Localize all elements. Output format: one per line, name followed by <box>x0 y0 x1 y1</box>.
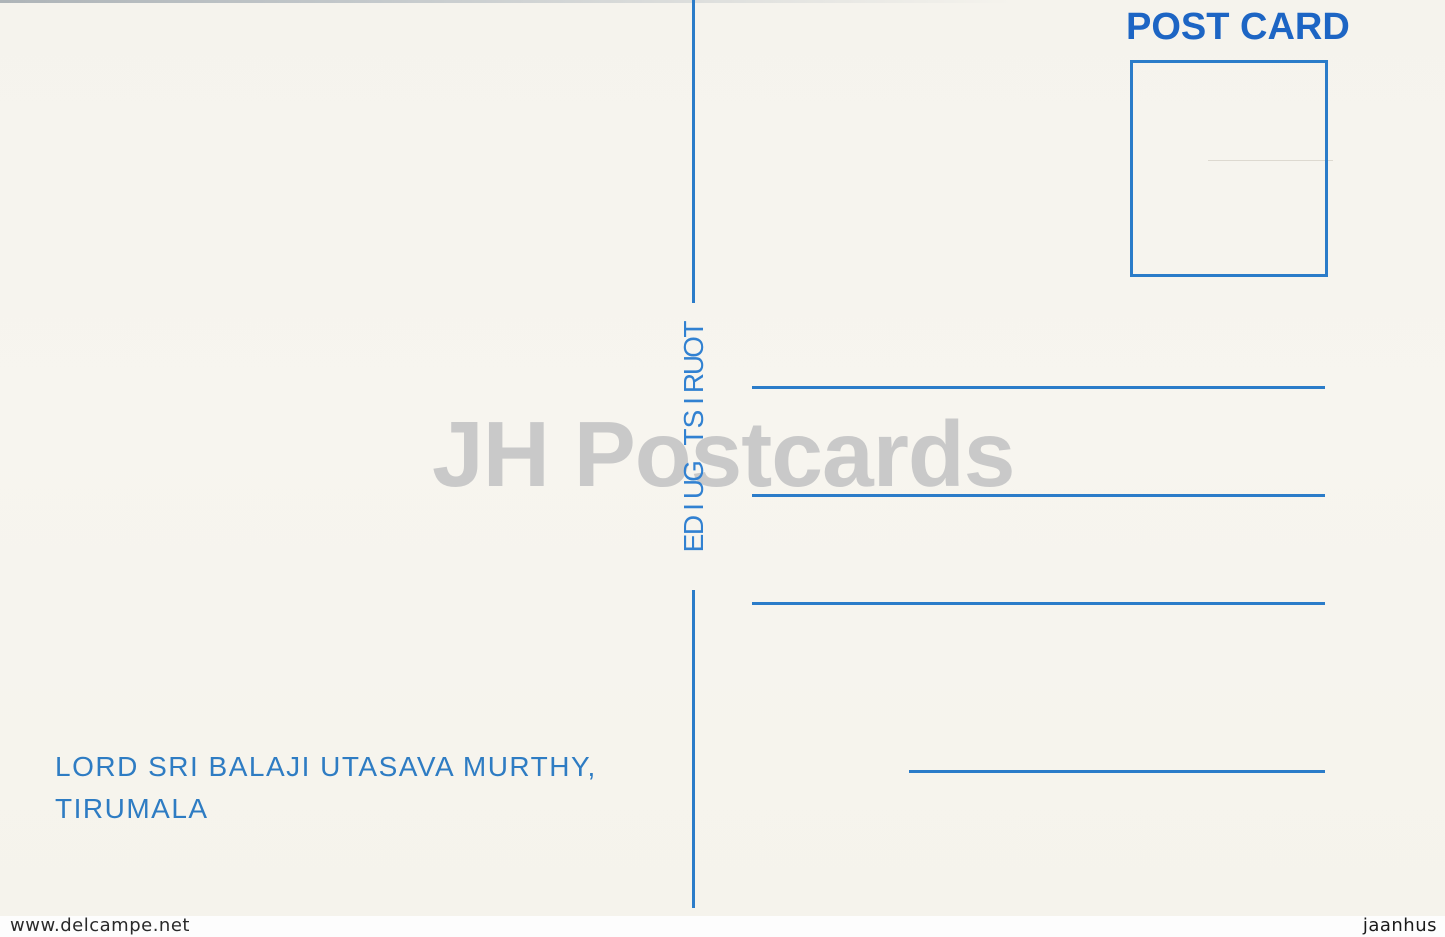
tourist-guide-label: T O U R I S T G U I D E <box>676 320 712 552</box>
tourist-guide-letter: T <box>685 419 703 455</box>
jaanhus-watermark: jaanhus <box>1363 915 1437 936</box>
divider-line-top <box>692 0 695 303</box>
tourist-guide-letter: E <box>685 525 703 561</box>
footer-strip: www.delcampe.net jaanhus <box>0 916 1445 937</box>
address-line-4 <box>909 770 1325 773</box>
caption-line-1: LORD SRI BALAJI UTASAVA MURTHY, <box>55 746 597 788</box>
watermark-text: JH Postcards <box>432 408 1014 501</box>
stamp-box <box>1130 60 1328 277</box>
address-line-2 <box>752 494 1325 497</box>
scan-edge <box>0 0 1445 3</box>
delcampe-watermark: www.delcampe.net <box>10 915 190 936</box>
postcard-scan: JH Postcards POST CARD T O U R I S T G U… <box>0 0 1445 937</box>
postcard-title: POST CARD <box>1126 8 1350 46</box>
caption-line-2: TIRUMALA <box>55 788 597 830</box>
address-line-3 <box>752 602 1325 605</box>
address-line-1 <box>752 386 1325 389</box>
caption: LORD SRI BALAJI UTASAVA MURTHY, TIRUMALA <box>55 746 597 830</box>
divider-line-bottom <box>692 590 695 908</box>
